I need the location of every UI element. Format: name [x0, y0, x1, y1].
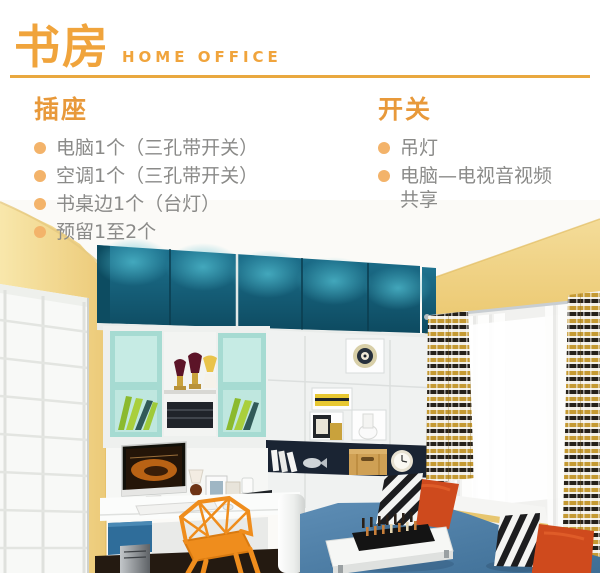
- switches-section: 开关 吊灯 电脑—电视音视频共享: [378, 90, 570, 248]
- display-shelf: [266, 440, 437, 478]
- title-english: HOME OFFICE: [122, 48, 282, 66]
- title-underline: [10, 75, 590, 78]
- sliding-door: [0, 284, 88, 573]
- bullet-icon: [378, 142, 390, 154]
- orange-pillow: [532, 524, 594, 573]
- bullet-icon: [378, 170, 390, 182]
- striped-pillow: [494, 513, 540, 567]
- switches-list: 吊灯 电脑—电视音视频共享: [378, 136, 570, 212]
- bullet-icon: [34, 198, 46, 210]
- wall-clock: [353, 344, 377, 368]
- list-item: 吊灯: [378, 136, 570, 160]
- mug: [242, 478, 253, 493]
- storage-basket: [349, 449, 387, 475]
- page-title: 书房 HOME OFFICE: [0, 0, 600, 70]
- bookshelf: [103, 326, 270, 448]
- book-stack: [167, 402, 213, 428]
- list-item: 书桌边1个（台灯）: [34, 192, 334, 216]
- list-item: 电脑1个（三孔带开关）: [34, 136, 334, 160]
- info-panel: 书房 HOME OFFICE 插座 电脑1个（三孔带开关） 空调1个（三孔带开关…: [0, 0, 600, 248]
- plaid-curtain-left: [426, 311, 474, 484]
- room-photo: [0, 200, 600, 573]
- list-item: 电脑—电视音视频共享: [378, 164, 570, 212]
- outlets-section: 插座 电脑1个（三孔带开关） 空调1个（三孔带开关） 书桌边1个（台灯） 预留1…: [34, 90, 334, 248]
- bullet-icon: [34, 226, 46, 238]
- outlets-heading: 插座: [34, 90, 334, 126]
- spec-columns: 插座 电脑1个（三孔带开关） 空调1个（三孔带开关） 书桌边1个（台灯） 预留1…: [0, 90, 600, 248]
- infographic-page: 书房 HOME OFFICE 插座 电脑1个（三孔带开关） 空调1个（三孔带开关…: [0, 0, 600, 573]
- outlets-list: 电脑1个（三孔带开关） 空调1个（三孔带开关） 书桌边1个（台灯） 预留1至2个: [34, 136, 334, 244]
- switches-heading: 开关: [378, 90, 570, 126]
- list-item: 预留1至2个: [34, 220, 334, 244]
- list-item: 空调1个（三孔带开关）: [34, 164, 334, 188]
- shelf-clock: [391, 450, 413, 472]
- title-chinese: 书房: [14, 24, 110, 70]
- bullet-icon: [34, 142, 46, 154]
- bullet-icon: [34, 170, 46, 182]
